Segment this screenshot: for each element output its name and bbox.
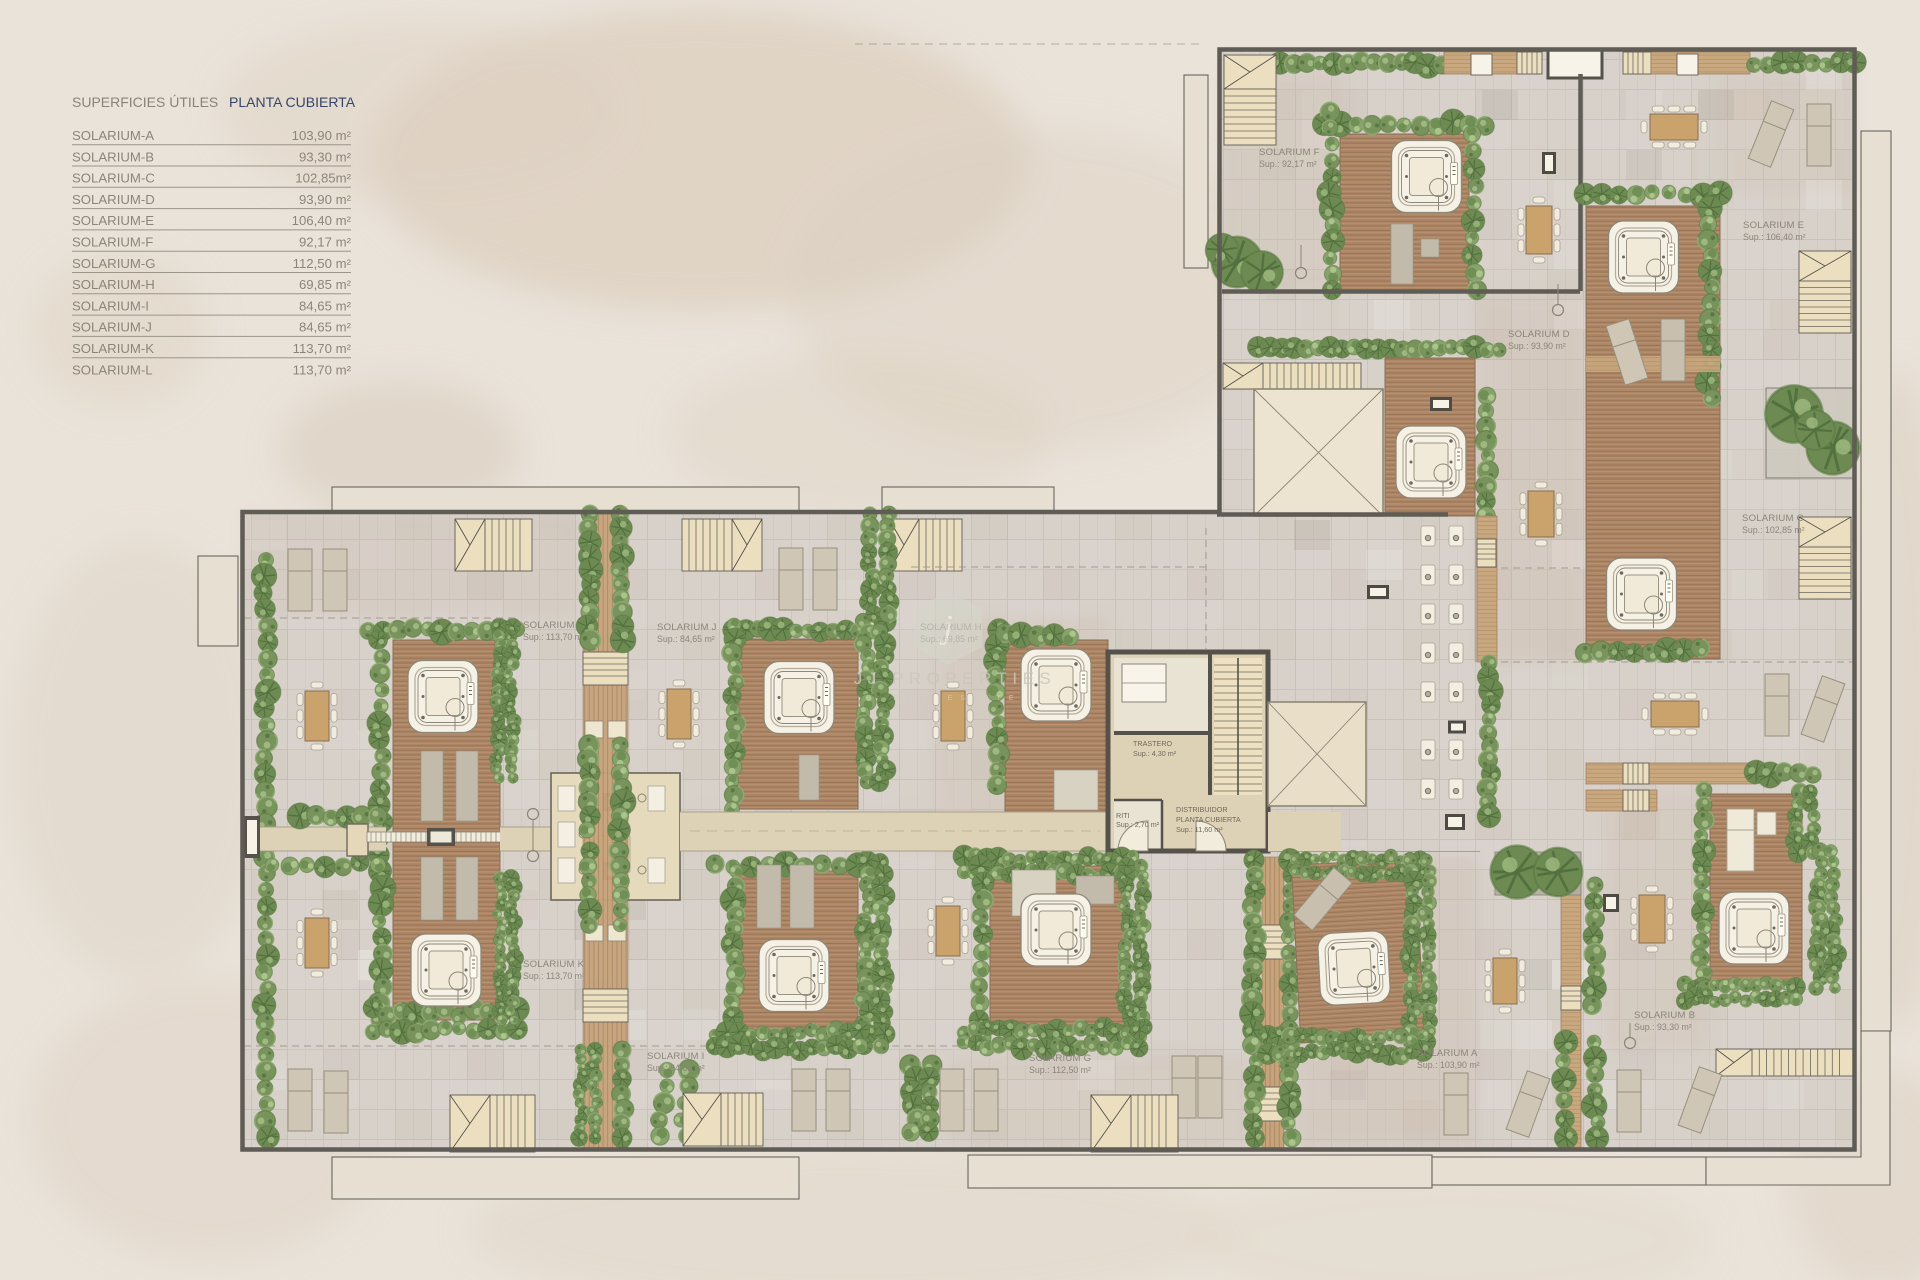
svg-text:Sup.: 84,65 m²: Sup.: 84,65 m²: [657, 634, 715, 644]
svg-text:SOLARIUM-A: SOLARIUM-A: [72, 128, 154, 143]
svg-text:Sup.: 112,50 m²: Sup.: 112,50 m²: [1029, 1065, 1091, 1075]
svg-text:SOLARIUM K: SOLARIUM K: [523, 959, 585, 970]
svg-text:Sup.: 93,90 m²: Sup.: 93,90 m²: [1508, 341, 1566, 351]
svg-text:102,85m²: 102,85m²: [295, 171, 351, 186]
svg-text:84,65 m²: 84,65 m²: [299, 320, 352, 335]
svg-text:Sup.: 11,60 m²: Sup.: 11,60 m²: [1176, 825, 1223, 834]
svg-text:69,85 m²: 69,85 m²: [299, 277, 352, 292]
svg-text:93,90 m²: 93,90 m²: [299, 192, 352, 207]
svg-text:SOLARIUM J: SOLARIUM J: [657, 622, 717, 633]
svg-text:Sup.: 2,70 m²: Sup.: 2,70 m²: [1116, 820, 1160, 829]
svg-text:Sup.: 93,30 m²: Sup.: 93,30 m²: [1634, 1022, 1692, 1032]
svg-text:Sup.: 4,30 m²: Sup.: 4,30 m²: [1133, 749, 1177, 758]
svg-text:RITI: RITI: [1116, 811, 1130, 820]
svg-text:SOLARIUM-B: SOLARIUM-B: [72, 149, 154, 164]
svg-text:SOLARIUM E: SOLARIUM E: [1743, 220, 1804, 231]
svg-text:R E A L E S T A T E: R E A L E S T A T E: [894, 695, 1017, 702]
svg-text:SOLARIUM-K: SOLARIUM-K: [72, 341, 154, 356]
svg-text:JJ PROPERTIES: JJ PROPERTIES: [854, 669, 1057, 688]
svg-text:DISTRIBUIDOR: DISTRIBUIDOR: [1176, 805, 1228, 814]
svg-text:SOLARIUM-G: SOLARIUM-G: [72, 256, 156, 271]
svg-text:SOLARIUM-F: SOLARIUM-F: [72, 235, 153, 250]
svg-text:SUPERFICIES ÚTILES: SUPERFICIES ÚTILES: [72, 94, 218, 110]
svg-text:SOLARIUM-C: SOLARIUM-C: [72, 171, 155, 186]
svg-text:93,30 m²: 93,30 m²: [299, 149, 352, 164]
svg-text:Sup.: 113,70 m²: Sup.: 113,70 m²: [523, 632, 585, 642]
svg-text:PLANTA CUBIERTA: PLANTA CUBIERTA: [1176, 815, 1241, 824]
svg-text:92,17 m²: 92,17 m²: [299, 235, 352, 250]
svg-text:113,70 m²: 113,70 m²: [293, 341, 352, 356]
svg-text:SOLARIUM A: SOLARIUM A: [1417, 1048, 1478, 1059]
svg-text:Sup.: 84,65 m²: Sup.: 84,65 m²: [647, 1063, 705, 1073]
svg-text:SOLARIUM B: SOLARIUM B: [1634, 1010, 1695, 1021]
svg-text:PLANTA CUBIERTA: PLANTA CUBIERTA: [229, 94, 356, 110]
svg-text:Sup.: 102,85 m²: Sup.: 102,85 m²: [1742, 525, 1805, 535]
svg-text:SOLARIUM D: SOLARIUM D: [1508, 329, 1570, 340]
svg-text:Sup.: 106,40 m²: Sup.: 106,40 m²: [1743, 232, 1806, 242]
svg-text:Sup.: 113,70 m²: Sup.: 113,70 m²: [523, 971, 585, 981]
svg-text:SOLARIUM-J: SOLARIUM-J: [72, 320, 152, 335]
svg-text:106,40 m²: 106,40 m²: [292, 213, 352, 228]
svg-text:Sup.: 103,90 m²: Sup.: 103,90 m²: [1417, 1060, 1480, 1070]
svg-text:SOLARIUM L: SOLARIUM L: [523, 620, 584, 631]
svg-text:SOLARIUM C: SOLARIUM C: [1742, 513, 1804, 524]
svg-text:112,50 m²: 112,50 m²: [293, 256, 352, 271]
svg-text:SOLARIUM-E: SOLARIUM-E: [72, 213, 154, 228]
svg-text:SOLARIUM-D: SOLARIUM-D: [72, 192, 155, 207]
svg-text:113,70 m²: 113,70 m²: [293, 362, 352, 377]
svg-text:SOLARIUM I: SOLARIUM I: [647, 1051, 704, 1062]
svg-text:SOLARIUM F: SOLARIUM F: [1259, 147, 1320, 158]
svg-text:SOLARIUM-L: SOLARIUM-L: [72, 362, 153, 377]
svg-text:84,65 m²: 84,65 m²: [299, 298, 352, 313]
svg-text:Sup.: 92,17 m²: Sup.: 92,17 m²: [1259, 159, 1317, 169]
svg-text:TRASTERO: TRASTERO: [1133, 739, 1173, 748]
svg-text:SOLARIUM-I: SOLARIUM-I: [72, 298, 149, 313]
svg-text:SOLARIUM-H: SOLARIUM-H: [72, 277, 155, 292]
svg-text:103,90 m²: 103,90 m²: [292, 128, 352, 143]
svg-text:SOLARIUM G: SOLARIUM G: [1029, 1053, 1091, 1064]
